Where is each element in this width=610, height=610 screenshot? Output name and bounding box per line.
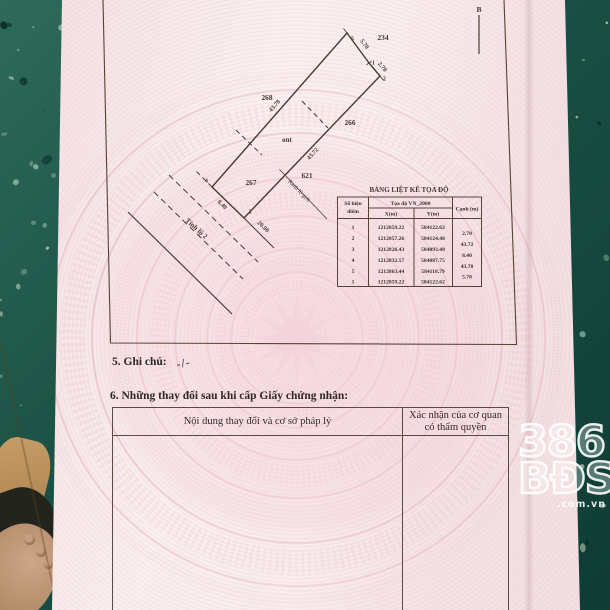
point-cell: 2 — [352, 236, 355, 242]
x-cell: 1212832.57 — [378, 258, 405, 264]
edge-cell: 8.40 — [462, 253, 472, 259]
changes-table: Nội dung thay đổi và cơ sở pháp lý Xác n… — [112, 407, 509, 610]
changes-col-header-1: Nội dung thay đổi và cơ sở pháp lý — [113, 408, 403, 435]
parcel-234: 234 — [377, 33, 388, 42]
col-point-header: Số hiệu — [344, 200, 362, 207]
coord-table-title: BẢNG LIỆT KÊ TỌA ĐỘ — [369, 186, 449, 194]
parcel-266: 266 — [344, 118, 355, 127]
road-lines — [128, 175, 258, 314]
vertex-5: 5 — [351, 37, 354, 43]
edge-cell: 43.72 — [461, 242, 474, 248]
note-label: 5. Ghi chú: — [112, 356, 167, 368]
logo-bds: BĐS — [518, 461, 610, 498]
note-section: 5. Ghi chú:-/- — [112, 354, 190, 369]
x-cell: 1212859.22 — [378, 225, 405, 231]
col-coord-header: Tọa độ VN_2000 — [391, 201, 431, 207]
changes-section-title: 6. Những thay đổi sau khi cấp Giấy chứng… — [110, 390, 348, 402]
point-cell: 3 — [352, 247, 355, 253]
changes-table-header: Nội dung thay đổi và cơ sở pháp lý Xác n… — [113, 408, 508, 436]
dimension-labels: 5.70 2.70 43.72 43.78 8.40 20.00 — [216, 38, 389, 235]
col-point-header2: điểm — [347, 208, 359, 215]
y-cell: 584122.62 — [421, 225, 445, 231]
coord-table-values: 1 1212859.22 584122.62 2 1212857.26 5841… — [352, 225, 474, 286]
point-cell: 1 — [352, 280, 355, 286]
edge-cell: 5.70 — [462, 275, 472, 281]
x-cell: 1212859.22 — [378, 280, 405, 286]
edge-cell: 2.70 — [462, 231, 472, 237]
y-cell: 584124.48 — [421, 236, 445, 242]
vertex-1: 1 — [372, 61, 375, 67]
boundary-label: Ranh lộ giới — [286, 179, 311, 204]
handwritten-note-mark: -/- — [175, 355, 192, 372]
col-edge-header: Cạnh (m) — [456, 206, 479, 213]
dim-1-2: 2.70 — [376, 61, 388, 74]
changes-body-cell-1 — [113, 436, 403, 610]
photo-of-land-certificate: B 5.70 2.70 — [0, 0, 610, 610]
parcel-621: 621 — [301, 171, 312, 180]
parcel-boundary — [212, 29, 384, 249]
y-cell: 584122.62 — [421, 280, 445, 286]
vertex-4: 4 — [205, 179, 208, 185]
point-cell: 1 — [352, 225, 355, 231]
changes-col-header-2: Xác nhận của cơ quan có thẩm quyền — [403, 408, 508, 435]
parcel-267: 267 — [245, 178, 256, 187]
vertex-3: 3 — [249, 210, 252, 216]
changes-body-cell-2 — [403, 436, 508, 610]
dim-2-3: 43.72 — [306, 146, 321, 161]
dim-5-1: 5.70 — [358, 38, 370, 51]
changes-table-body — [113, 436, 508, 610]
col-x-header: X(m) — [385, 211, 398, 218]
edge-cell: 43.78 — [461, 264, 474, 270]
land-use-code: ont — [282, 136, 292, 144]
parcel-268: 268 — [261, 93, 272, 102]
x-cell: 1212826.43 — [378, 247, 405, 253]
x-cell: 1212857.26 — [378, 236, 405, 242]
x-cell: 1212863.44 — [378, 269, 405, 275]
vertex-2: 2 — [383, 77, 386, 83]
watermark-logo-386bds: 386 BĐS .com.vn — [518, 424, 610, 509]
point-cell: 4 — [352, 258, 355, 264]
toe — [24, 534, 35, 545]
land-certificate-page: B 5.70 2.70 — [0, 0, 610, 610]
y-cell: 584087.75 — [421, 258, 445, 264]
north-label: B — [476, 5, 481, 14]
y-cell: 584118.79 — [421, 269, 445, 275]
col-y-header: Y(m) — [427, 211, 440, 218]
point-cell: 5 — [352, 269, 355, 275]
coord-table-headers: Số hiệu điểm Tọa độ VN_2000 X(m) Y(m) Cạ… — [344, 200, 478, 218]
y-cell: 584093.48 — [421, 247, 445, 253]
road-name: Tỉnh lộ 2 — [184, 217, 210, 241]
